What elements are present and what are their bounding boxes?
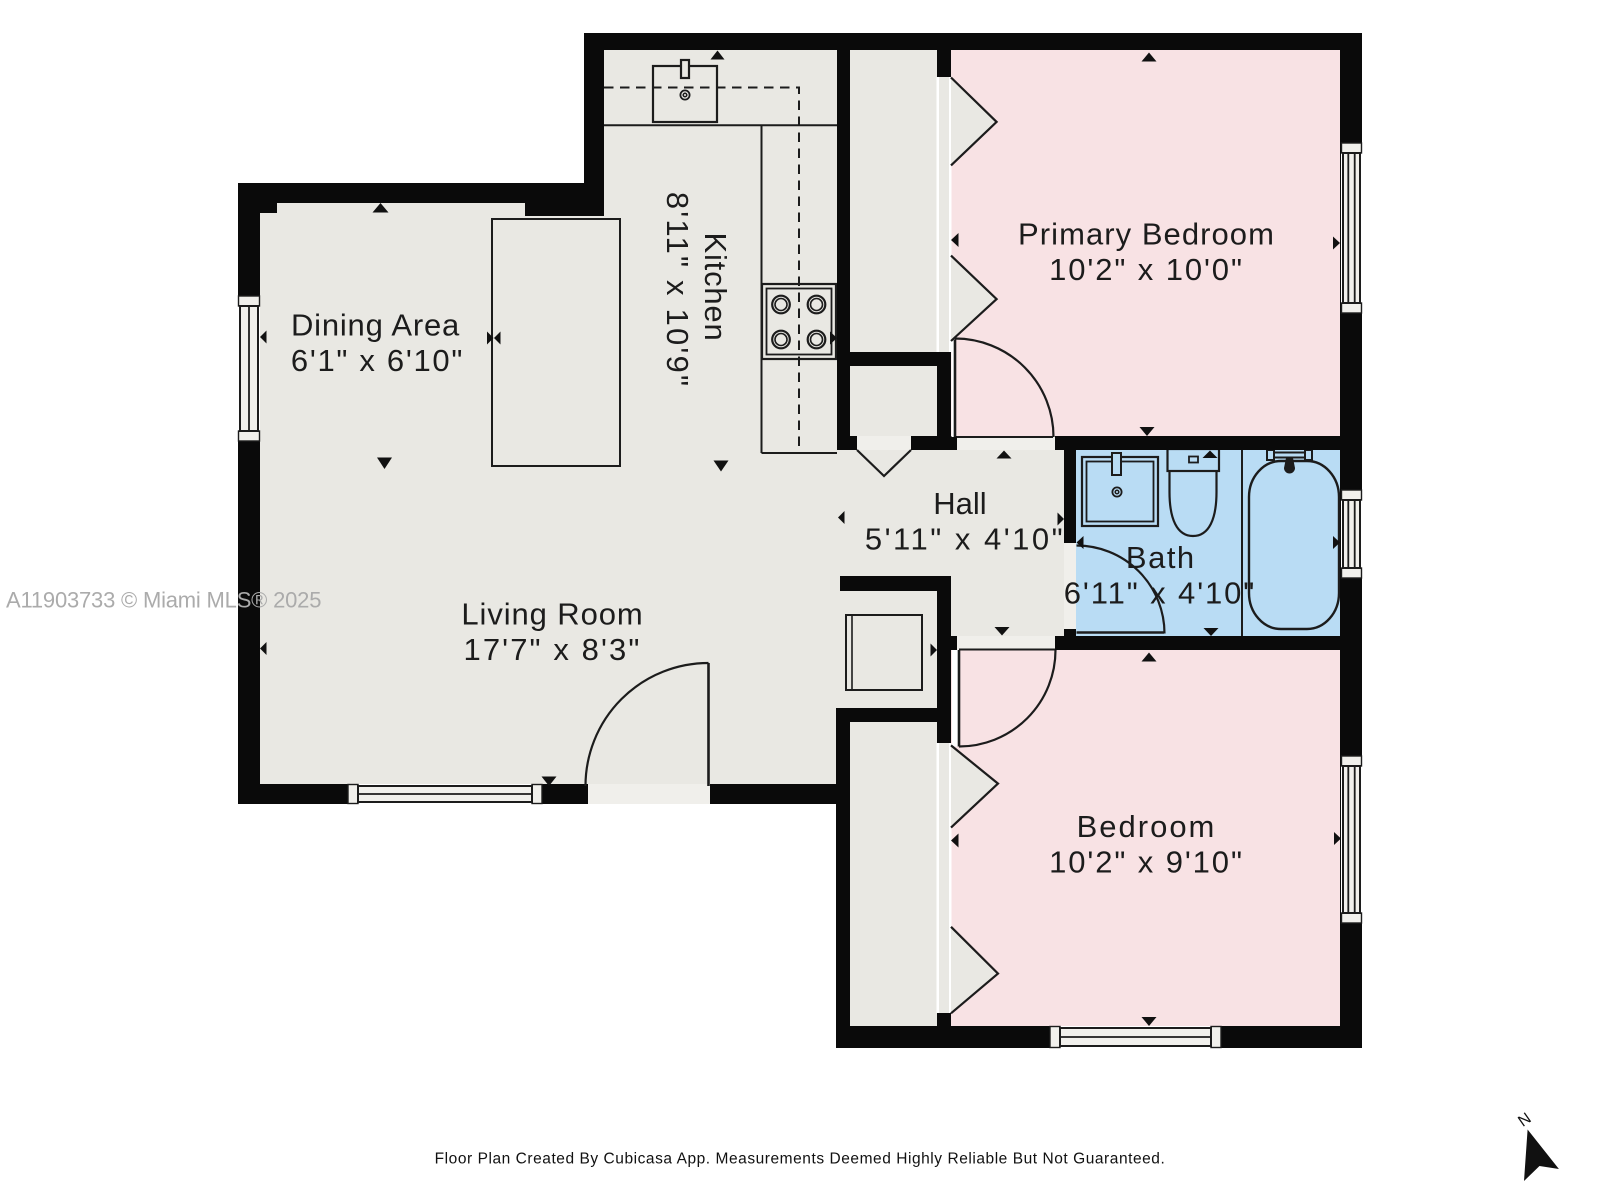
svg-text:17'7" x 8'3": 17'7" x 8'3" xyxy=(464,632,642,667)
svg-text:6'1" x 6'10": 6'1" x 6'10" xyxy=(291,343,464,378)
svg-text:10'2" x 10'0": 10'2" x 10'0" xyxy=(1049,252,1244,287)
svg-text:A11903733 © Miami MLS® 2025: A11903733 © Miami MLS® 2025 xyxy=(6,588,321,613)
svg-text:Hall: Hall xyxy=(933,486,986,521)
svg-text:Floor Plan Created By Cubicasa: Floor Plan Created By Cubicasa App. Meas… xyxy=(435,1151,1166,1168)
svg-text:Living Room: Living Room xyxy=(461,597,643,632)
svg-text:Bath: Bath xyxy=(1126,540,1196,575)
svg-text:10'2" x 9'10": 10'2" x 9'10" xyxy=(1049,844,1244,879)
svg-text:Dining Area: Dining Area xyxy=(291,307,460,342)
svg-text:Bedroom: Bedroom xyxy=(1077,809,1217,844)
svg-text:6'11" x 4'10": 6'11" x 4'10" xyxy=(1064,575,1256,610)
svg-text:Primary Bedroom: Primary Bedroom xyxy=(1018,217,1275,252)
svg-text:5'11" x 4'10": 5'11" x 4'10" xyxy=(865,522,1065,557)
